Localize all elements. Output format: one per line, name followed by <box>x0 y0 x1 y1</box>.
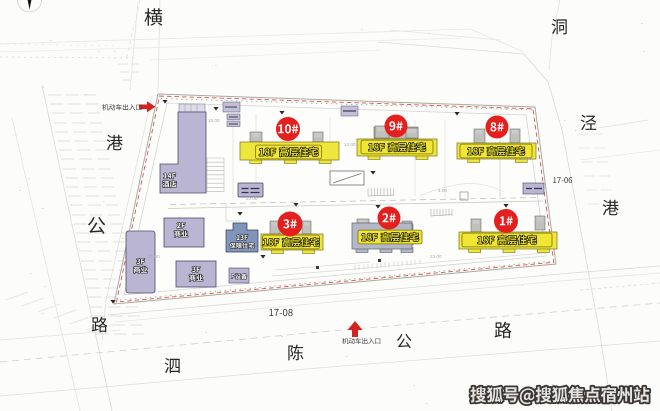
svg-text:12 00: 12 00 <box>148 254 160 259</box>
svg-text:23 00: 23 00 <box>246 196 258 201</box>
svg-text:10 00: 10 00 <box>208 118 220 123</box>
svg-text:16 00: 16 00 <box>520 156 532 161</box>
svg-text:23 00: 23 00 <box>430 254 442 259</box>
svg-text:13 00: 13 00 <box>344 142 356 147</box>
svg-text:4 00: 4 00 <box>438 188 447 193</box>
